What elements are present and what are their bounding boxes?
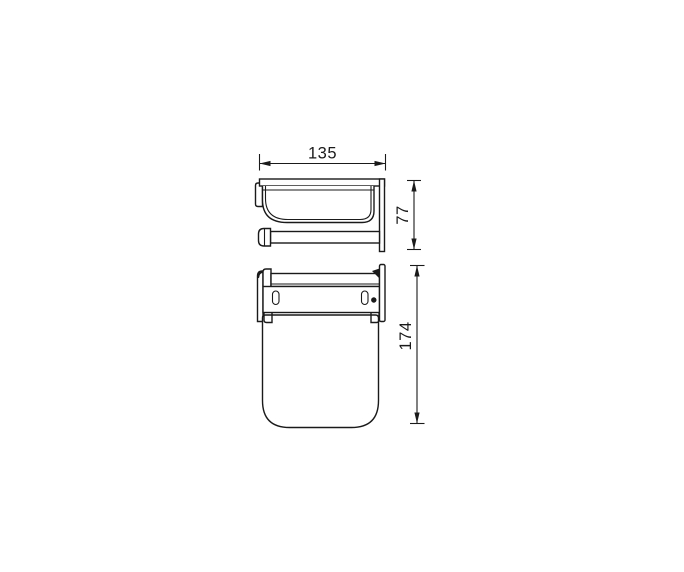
arrowhead-up-icon [414, 266, 419, 277]
top-plate [260, 179, 385, 186]
arrowhead-up-icon [411, 181, 416, 192]
cover-body [263, 315, 379, 428]
arrowhead-left-icon [260, 161, 271, 166]
dimension-depth-label: 174 [397, 321, 415, 350]
arrowhead-down-icon [414, 413, 419, 424]
dimension-height-label: 77 [394, 205, 412, 224]
drawing-canvas: 135 77 [0, 0, 684, 572]
bracket-right [380, 179, 385, 252]
arrowhead-down-icon [411, 239, 416, 250]
wall-strip-right [380, 265, 386, 322]
screw-dot [371, 297, 376, 302]
dimension-width-label: 135 [308, 145, 337, 163]
top-view: 174 [258, 265, 425, 428]
roller-end-cap-top [263, 269, 271, 289]
dimension-height: 77 [394, 181, 421, 250]
wall-strip-left [258, 271, 264, 322]
dimension-width: 135 [260, 145, 386, 171]
roller-bar [271, 232, 380, 244]
shelf-basket-outline [263, 186, 375, 223]
technical-drawing: 135 77 [0, 0, 684, 572]
arrowhead-right-icon [375, 161, 386, 166]
dimension-depth: 174 [397, 266, 425, 424]
front-view: 135 77 [256, 145, 422, 252]
